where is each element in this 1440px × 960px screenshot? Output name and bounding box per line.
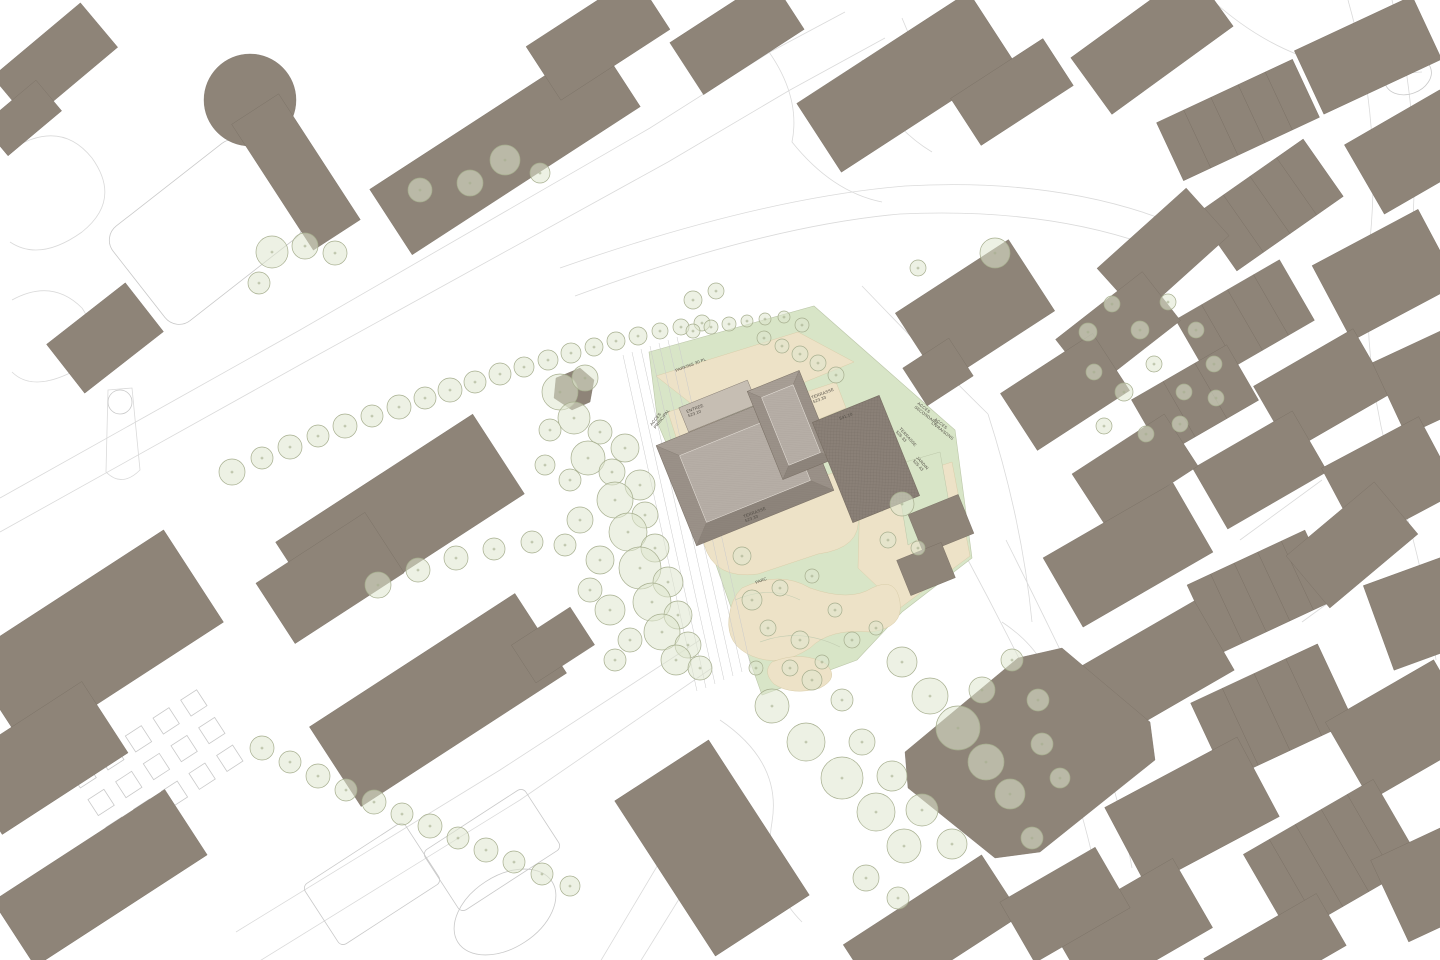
tree-canopy [969,677,995,703]
tree-canopy [661,645,691,675]
tree-canopy [1131,321,1149,339]
tree [572,365,598,391]
tree-canopy [791,631,809,649]
tree-canopy [792,346,808,362]
planter-square [88,789,114,815]
tree [585,338,603,356]
tree-canopy [877,761,907,791]
tree-canopy [869,621,883,635]
tree [560,876,580,896]
tree-canopy [795,318,809,332]
tree-canopy [559,469,581,491]
tree-canopy [1176,384,1192,400]
tree-canopy [474,838,498,862]
tree [805,569,819,583]
tree [483,538,505,560]
site-plan-svg: PARKING 30 PLENTREE523.10ACCESPRINCIPALT… [0,0,1440,960]
tree-canopy [802,670,822,690]
tree [578,578,602,602]
tree [760,620,776,636]
tree-canopy [759,313,771,325]
tree [791,631,809,649]
tree [1146,356,1162,372]
tree [910,260,926,276]
tree [362,790,386,814]
tree [607,332,625,350]
tree [489,363,511,385]
tree-canopy [567,507,593,533]
tree [749,661,763,675]
tree [588,420,612,444]
tree [772,580,788,596]
tree [365,572,391,598]
tree-canopy [887,829,921,863]
tree-canopy [810,355,826,371]
tree [688,656,712,680]
planter-square [199,717,225,743]
tree-canopy [503,851,525,873]
tree [414,387,436,409]
tree-canopy [578,578,602,602]
tree [1131,321,1149,339]
tree-canopy [521,531,543,553]
tree-canopy [219,459,245,485]
tree-canopy [733,547,751,565]
tree-canopy [418,814,442,838]
tree-canopy [778,311,790,323]
tree [279,751,301,773]
tree-canopy [688,656,712,680]
tree-canopy [391,803,413,825]
planter-square [181,690,207,716]
building [1312,209,1440,340]
tree-canopy [772,580,788,596]
tree [722,317,736,331]
tree [307,425,329,447]
tree [490,145,520,175]
tree-canopy [561,343,581,363]
tree [531,863,553,885]
tree [474,838,498,862]
tree-canopy [365,572,391,598]
tree [464,371,486,393]
tree-canopy [1138,426,1154,442]
tree-canopy [686,324,700,338]
tree [1104,296,1120,312]
tree-canopy [362,790,386,814]
tree-canopy [560,876,580,896]
tree [1021,827,1043,849]
tree [1172,416,1188,432]
tree-canopy [741,315,753,327]
planter-square [143,753,169,779]
tree [759,313,771,325]
tree-canopy [755,689,789,723]
tree-canopy [1079,323,1097,341]
tree-canopy [1104,296,1120,312]
tree [802,670,822,690]
tree [1086,364,1102,380]
tree [561,343,581,363]
tree-canopy [490,145,520,175]
building [1372,325,1440,436]
tree-canopy [539,419,561,441]
tree [849,729,875,755]
tree [782,660,798,676]
tree-canopy [251,447,273,469]
building [670,0,804,95]
tree [391,803,413,825]
tree-canopy [607,332,625,350]
tree [1096,418,1112,434]
tree-canopy [890,492,914,516]
tree-canopy [387,395,411,419]
tree [869,621,883,635]
tree [306,764,330,788]
tree [514,357,534,377]
tree-canopy [1146,356,1162,372]
tree-canopy [629,327,647,345]
tree-canopy [335,779,357,801]
tree [733,547,751,565]
tree [535,455,555,475]
tree [857,793,895,831]
tree [599,459,625,485]
tree-canopy [530,163,550,183]
tree [741,315,753,327]
tree-canopy [775,339,789,353]
tree [775,339,789,353]
tree-canopy [1096,418,1112,434]
tree-canopy [995,779,1025,809]
tree [1160,294,1176,310]
tree-canopy [980,238,1010,268]
tree [333,414,357,438]
tree [444,546,468,570]
tree-canopy [844,632,860,648]
tree [686,324,700,338]
tree [708,283,724,299]
tree-canopy [585,338,603,356]
tree-canopy [447,827,469,849]
tree-canopy [414,387,436,409]
tree-canopy [333,414,357,438]
tree [1206,356,1222,372]
parcel-line [106,388,140,480]
building [47,283,164,393]
tree [597,482,633,518]
tree-canopy [831,689,853,711]
tree-canopy [406,558,430,582]
tree [936,706,980,750]
tree-canopy [408,178,432,202]
tree-canopy [1086,364,1102,380]
tree-canopy [652,323,668,339]
tree-canopy [535,455,555,475]
ellipse-outline [108,390,132,414]
tree [387,395,411,419]
tree-canopy [742,590,762,610]
tree-canopy [849,729,875,755]
tree [757,331,771,345]
tree [558,402,590,434]
tree [880,532,896,548]
tree [586,546,614,574]
tree-canopy [1031,733,1053,755]
tree-canopy [912,678,948,714]
tree-canopy [558,402,590,434]
tree [256,236,288,268]
tree [418,814,442,838]
tree [1176,384,1192,400]
parcel-line [10,136,105,250]
tree-canopy [278,435,302,459]
tree-canopy [489,363,511,385]
tree-canopy [821,757,863,799]
tree [684,291,702,309]
tree [408,178,432,202]
tree-canopy [483,538,505,560]
tree [980,238,1010,268]
tree [406,558,430,582]
tree-canopy [937,829,967,859]
tree [1027,689,1049,711]
tree [604,649,626,671]
tree-canopy [828,367,844,383]
tree [1188,322,1204,338]
tree-canopy [757,331,771,345]
building [309,593,566,806]
tree [995,779,1025,809]
parcel-line [988,414,1032,622]
tree [323,241,347,265]
tree [644,614,680,650]
tree [503,851,525,873]
building [1071,0,1233,114]
tree-canopy [704,320,718,334]
tree-canopy [1001,649,1023,671]
tree [611,434,639,462]
tree-canopy [880,532,896,548]
tree [559,469,581,491]
tree [778,311,790,323]
tree-canopy [749,661,763,675]
tree-canopy [572,365,598,391]
tree [1001,649,1023,671]
tree [755,689,789,723]
tree [438,378,462,402]
tree-canopy [887,887,909,909]
planter-square [125,726,151,752]
tree [539,419,561,441]
tree-canopy [760,620,776,636]
tree-canopy [554,534,576,556]
court-outline [302,821,442,947]
tree [335,779,357,801]
tree-canopy [722,317,736,331]
tree-canopy [361,405,383,427]
tree-canopy [1206,356,1222,372]
tree [877,761,907,791]
planter-square [171,735,197,761]
tree-canopy [599,459,625,485]
tree-canopy [1208,390,1224,406]
tree-canopy [611,434,639,462]
tree [911,541,925,555]
tree [521,531,543,553]
tree [828,603,842,617]
tree-canopy [805,569,819,583]
tree [1115,383,1133,401]
tree-canopy [306,764,330,788]
tree [1079,323,1097,341]
tree-canopy [248,272,270,294]
tree [887,647,917,677]
tree [248,272,270,294]
tree-canopy [906,794,938,826]
tree [787,723,825,761]
tree-canopy [538,350,558,370]
tree [618,628,642,652]
tree [887,829,921,863]
tree-canopy [1050,768,1070,788]
tree-canopy [292,233,318,259]
tree [554,534,576,556]
tree-canopy [618,628,642,652]
tree-canopy [708,283,724,299]
tree-canopy [604,649,626,671]
tree [810,355,826,371]
tree [831,689,853,711]
building [1294,0,1440,114]
tree [530,163,550,183]
tree [538,350,558,370]
tree [912,678,948,714]
tree-canopy [307,425,329,447]
tree-canopy [936,706,980,750]
tree-canopy [250,736,274,760]
planter-square [217,745,243,771]
tree [1208,390,1224,406]
parcel-line [575,213,1190,296]
tree [219,459,245,485]
tree-canopy [644,614,680,650]
tree-canopy [531,863,553,885]
tree-canopy [597,482,633,518]
tree [1031,733,1053,755]
tree-canopy [588,420,612,444]
tree [457,170,483,196]
tree-canopy [1172,416,1188,432]
tree [906,794,938,826]
tree-canopy [910,260,926,276]
planter-square [116,771,142,797]
tree-canopy [828,603,842,617]
tree [361,405,383,427]
tree-canopy [323,241,347,265]
tree-canopy [256,236,288,268]
tree-canopy [586,546,614,574]
tree [704,320,718,334]
tree [815,655,829,669]
tree [853,865,879,891]
tree [250,736,274,760]
tree [795,318,809,332]
tree [792,346,808,362]
tree [567,507,593,533]
tree-canopy [457,170,483,196]
tree-canopy [787,723,825,761]
tree-canopy [684,291,702,309]
tree [937,829,967,859]
tree-canopy [968,744,1004,780]
tree-canopy [438,378,462,402]
tree-canopy [444,546,468,570]
tree [447,827,469,849]
tree [887,887,909,909]
tree [969,677,995,703]
tree-canopy [911,541,925,555]
tree [968,744,1004,780]
planter-square [189,763,215,789]
building [615,740,810,956]
tree [629,327,647,345]
building [1344,90,1440,214]
tree [595,595,625,625]
tree [828,367,844,383]
tree-canopy [887,647,917,677]
tree-canopy [1027,689,1049,711]
tree-canopy [464,371,486,393]
tree-canopy [857,793,895,831]
tree-canopy [514,357,534,377]
tree [821,757,863,799]
tree-canopy [279,751,301,773]
tree-canopy [1021,827,1043,849]
tree [1138,426,1154,442]
tree [742,590,762,610]
tree-canopy [782,660,798,676]
tree-canopy [1160,294,1176,310]
building [232,94,361,250]
tree-canopy [1115,383,1133,401]
tree [292,233,318,259]
tree [1050,768,1070,788]
tree [652,323,668,339]
tree [278,435,302,459]
planter-square [153,708,179,734]
site-plan-map: PARKING 30 PLENTREE523.10ACCESPRINCIPALT… [0,0,1440,960]
tree-canopy [853,865,879,891]
tree [251,447,273,469]
tree-canopy [595,595,625,625]
tree [844,632,860,648]
tree-canopy [1188,322,1204,338]
tree [890,492,914,516]
building [1325,660,1440,800]
tree-canopy [815,655,829,669]
tree [661,645,691,675]
